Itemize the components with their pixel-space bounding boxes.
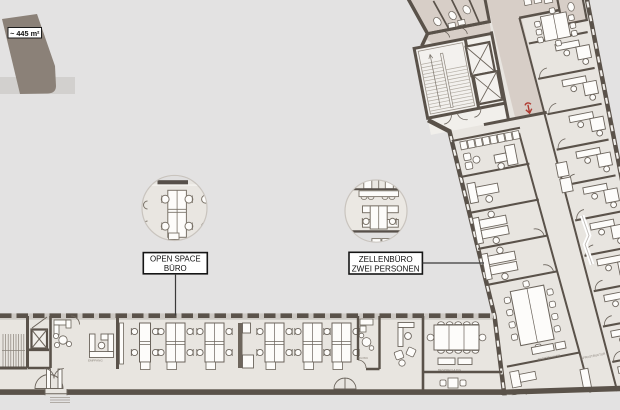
svg-text:DU/WC: DU/WC <box>358 356 369 360</box>
svg-text:~ 445 m²: ~ 445 m² <box>10 29 40 38</box>
svg-text:BÜRO: BÜRO <box>164 264 187 273</box>
svg-text:ZWEI PERSONEN: ZWEI PERSONEN <box>352 265 420 274</box>
svg-text:OPEN SPACE: OPEN SPACE <box>150 255 201 264</box>
svg-text:ZELLENBÜRO: ZELLENBÜRO <box>359 255 413 264</box>
svg-text:EMPFANG: EMPFANG <box>88 359 103 363</box>
